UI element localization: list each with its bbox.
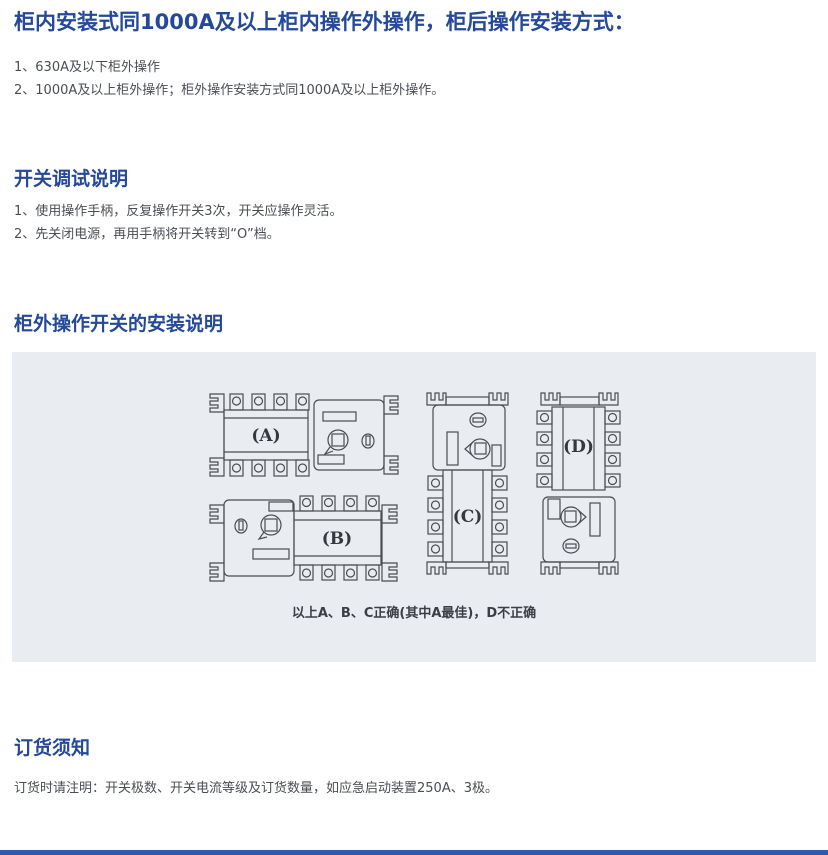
handle-socket-icon [465,439,490,459]
diagram-label-d: (D) [563,437,594,457]
manual-page: { "intro": { "title": "柜内安装式同1000A及以上柜内操… [0,0,828,855]
screw-icon [563,539,579,553]
diagram-label-a: (A) [251,426,280,446]
din-bracket-left [210,394,224,476]
operator-mechanism [314,400,384,470]
order-note: 订货时请注明：开关极数、开关电流等级及订货数量，如应急启动装置250A、3极。 [14,781,814,797]
terminals-left [428,476,443,556]
debug-item-1: 1、使用操作手柄，反复操作开关3次，开关应操作灵活。 [14,204,814,220]
handle-socket-icon [561,507,586,527]
page-title: 柜内安装式同1000A及以上柜内操作外操作，柜后操作安装方式： [14,8,814,36]
din-bracket-top [541,393,618,405]
handle-socket-icon [325,430,348,454]
diagram-label-c: (C) [453,507,483,527]
operator-mechanism [224,500,294,576]
screw-icon [470,413,486,427]
diagram-caption: 以上A、B、C正确(其中A最佳)，D不正确 [12,602,816,621]
diagram-d: (D) [533,388,628,580]
operator-mechanism [543,497,615,562]
terminals-top [230,394,309,410]
section-title-debug: 开关调试说明 [14,164,814,191]
handle-socket-icon [259,515,281,539]
din-bracket-left [210,505,224,581]
terminals-bottom [300,565,379,580]
din-bracket-top [427,393,508,405]
keyhole-icon [235,519,247,533]
section-title-install: 柜外操作开关的安装说明 [14,309,814,336]
diagram-label-b: (B) [322,529,352,549]
terminals-bottom [230,460,309,476]
intro-item-2: 2、1000A及以上柜外操作；柜外操作安装方式同1000A及以上柜外操作。 [14,83,814,99]
terminals-right [605,411,620,487]
terminals-left [537,411,552,487]
din-bracket-right [382,505,397,581]
keyhole-icon [362,434,374,448]
diagram-a: (A) [209,385,399,480]
diagram-b: (B) [209,493,399,593]
debug-item-2: 2、先关闭电源，再用手柄将开关转到“O”档。 [14,227,814,243]
din-bracket-bottom [427,562,508,574]
section-title-order: 订货须知 [14,733,814,760]
installation-diagram-panel: (A) [12,352,816,662]
din-bracket-bottom [541,562,618,574]
diagram-c: (C) [420,388,515,580]
din-bracket-right [384,396,398,474]
footer-bar [0,850,828,855]
terminals-top [300,496,379,511]
intro-item-1: 1、630A及以下柜外操作 [14,60,814,76]
terminals-right [492,476,507,556]
operator-mechanism [433,405,505,470]
